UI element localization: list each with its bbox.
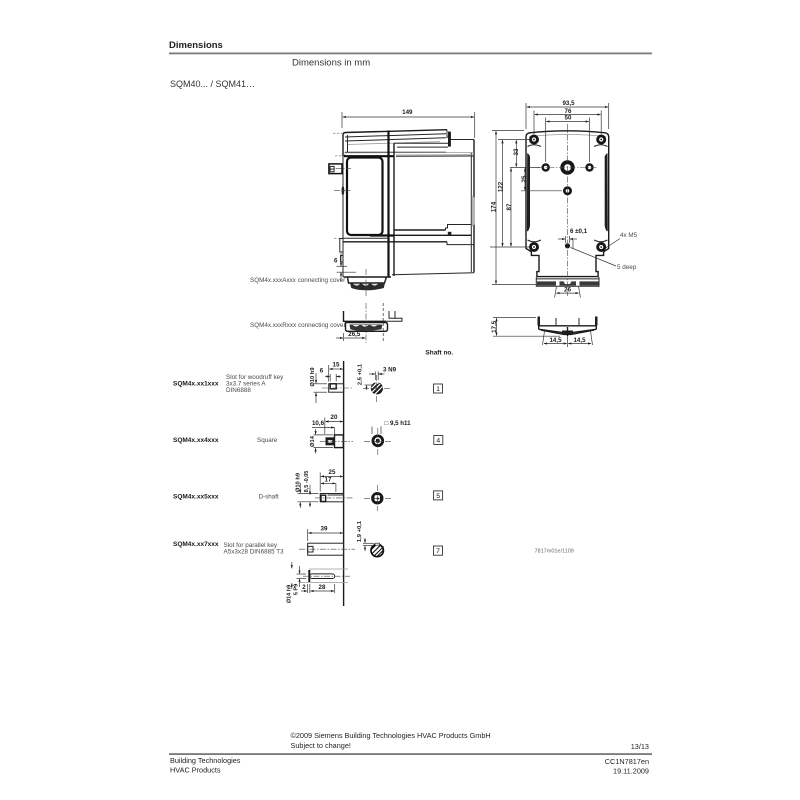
svg-text:Shaft no.: Shaft no. (425, 349, 453, 356)
svg-text:25: 25 (521, 175, 528, 182)
svg-text:7: 7 (436, 548, 440, 555)
svg-text:33: 33 (513, 148, 520, 155)
svg-text:87: 87 (506, 203, 513, 210)
svg-text:Ø14: Ø14 (310, 435, 316, 447)
svg-text:SQM40... / SQM41…: SQM40... / SQM41… (170, 79, 255, 89)
svg-text:D-shaft: D-shaft (259, 494, 280, 501)
svg-text:Ø10 h9: Ø10 h9 (295, 472, 301, 492)
svg-text:50: 50 (565, 114, 572, 121)
svg-text:Dimensions in mm: Dimensions in mm (292, 57, 370, 68)
svg-text:174: 174 (491, 201, 498, 212)
svg-text:17,5: 17,5 (491, 320, 498, 333)
svg-text:10,6: 10,6 (312, 420, 325, 427)
svg-text:14,5: 14,5 (549, 337, 562, 344)
svg-text:93,5: 93,5 (562, 100, 575, 107)
svg-text:3 N9: 3 N9 (383, 367, 397, 374)
svg-text:Ø14 h9: Ø14 h9 (286, 585, 292, 603)
svg-text:8,5 -0,05: 8,5 -0,05 (304, 471, 310, 493)
svg-text:26: 26 (564, 287, 571, 294)
svg-text:DIN6888: DIN6888 (226, 387, 251, 394)
svg-text:6 ±0,1: 6 ±0,1 (570, 228, 588, 235)
svg-text:SQM4x.xx4xxx: SQM4x.xx4xxx (173, 437, 219, 444)
svg-text:©2009 Siemens Building Technol: ©2009 Siemens Building Technologies HVAC… (291, 731, 491, 740)
svg-text:SQM4x.xxxAxxx connecting cover: SQM4x.xxxAxxx connecting cover (250, 277, 345, 284)
svg-text:5 P9: 5 P9 (294, 584, 300, 595)
svg-text:19.11.2009: 19.11.2009 (613, 766, 649, 775)
svg-text:17: 17 (325, 477, 332, 484)
svg-text:SQM4x.xx5xxx: SQM4x.xx5xxx (173, 494, 219, 501)
svg-text:7817m01e/1109: 7817m01e/1109 (535, 549, 574, 555)
svg-text:25: 25 (329, 469, 336, 476)
svg-text:1,9 +0,1: 1,9 +0,1 (357, 520, 363, 542)
svg-text:122: 122 (497, 181, 504, 192)
svg-text:6: 6 (334, 258, 338, 265)
svg-text:□ 9,5 h11: □ 9,5 h11 (385, 420, 412, 427)
svg-text:A5x3x28 DIN6885 T3: A5x3x28 DIN6885 T3 (224, 549, 285, 556)
svg-text:39: 39 (321, 526, 328, 533)
svg-text:Ø10 h9: Ø10 h9 (310, 367, 316, 387)
svg-text:CC1N7817en: CC1N7817en (605, 757, 649, 766)
svg-text:Dimensions: Dimensions (169, 40, 223, 51)
svg-text:Subject to change!: Subject to change! (291, 741, 351, 750)
svg-text:14,5: 14,5 (573, 337, 586, 344)
svg-text:20: 20 (331, 414, 338, 421)
svg-text:6: 6 (320, 368, 324, 375)
svg-text:4: 4 (436, 438, 440, 445)
svg-text:2: 2 (302, 584, 306, 591)
svg-text:149: 149 (402, 109, 413, 116)
svg-text:15: 15 (333, 362, 340, 369)
svg-text:26,5: 26,5 (348, 331, 361, 338)
svg-text:4x M5: 4x M5 (620, 232, 638, 239)
svg-text:HVAC Products: HVAC Products (170, 766, 221, 775)
svg-text:13/13: 13/13 (631, 742, 649, 751)
svg-text:1: 1 (436, 386, 440, 393)
svg-text:Building Technologies: Building Technologies (170, 756, 241, 765)
svg-text:2,5 +0,1: 2,5 +0,1 (358, 363, 364, 385)
svg-text:5: 5 (436, 493, 440, 500)
svg-text:SQM4x.xx7xxx: SQM4x.xx7xxx (173, 541, 219, 548)
svg-text:SQM4x.xx1xxx: SQM4x.xx1xxx (173, 381, 219, 388)
svg-text:5 deep: 5 deep (617, 264, 637, 271)
svg-text:28: 28 (319, 584, 326, 591)
svg-text:Square: Square (257, 437, 278, 444)
svg-text:SQM4x.xxxRxxx connecting cover: SQM4x.xxxRxxx connecting cover (250, 322, 346, 329)
